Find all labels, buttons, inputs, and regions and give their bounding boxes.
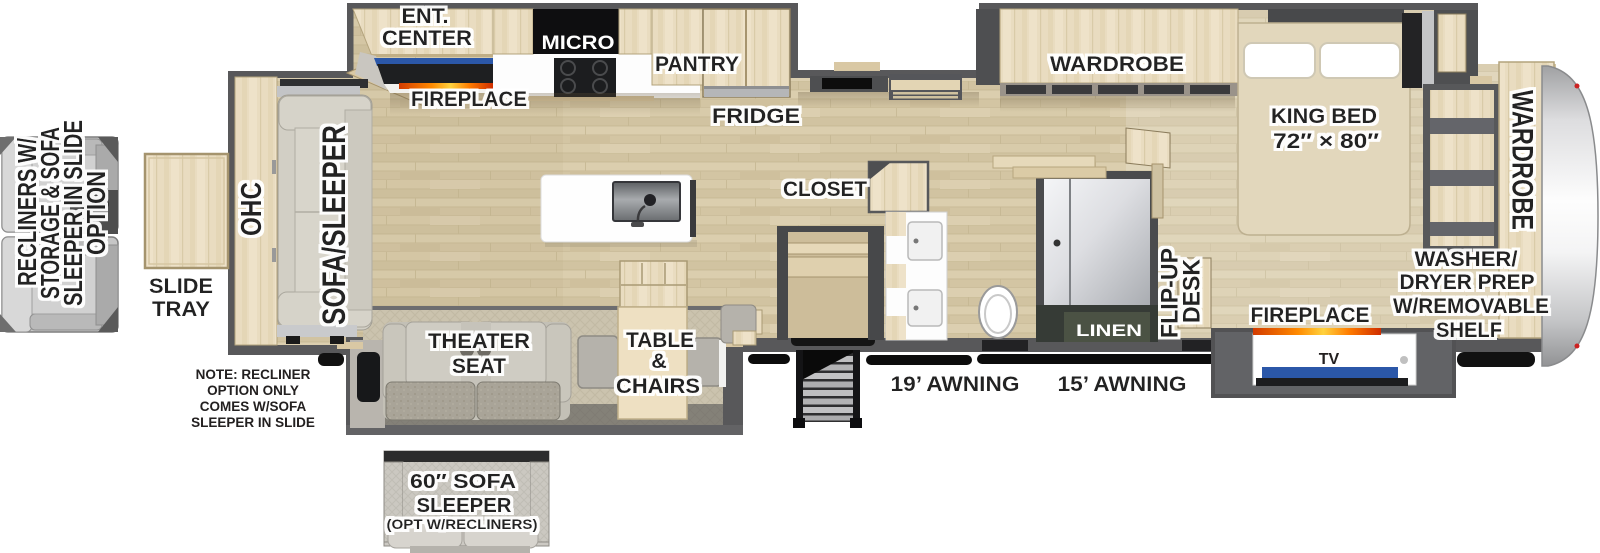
svg-text:72″ × 80″: 72″ × 80″: [1273, 129, 1379, 153]
svg-text:SLIDE: SLIDE: [149, 274, 213, 298]
svg-text:(OPT W/RECLINERS): (OPT W/RECLINERS): [387, 517, 538, 532]
svg-text:LINEN: LINEN: [1076, 322, 1142, 340]
svg-text:CLOSET: CLOSET: [783, 177, 867, 201]
svg-text:ENT.: ENT.: [402, 4, 449, 28]
svg-text:FRIDGE: FRIDGE: [712, 104, 800, 128]
svg-text:15’ AWNING: 15’ AWNING: [1058, 372, 1187, 396]
svg-text:COMES W/SOFA: COMES W/SOFA: [200, 399, 307, 414]
svg-text:NOTE: RECLINER: NOTE: RECLINER: [196, 367, 311, 382]
svg-text:THEATER: THEATER: [428, 329, 530, 353]
svg-text:OHC: OHC: [236, 182, 268, 236]
svg-text:WARDROBE: WARDROBE: [1050, 52, 1184, 76]
svg-text:TRAY: TRAY: [152, 297, 210, 321]
svg-text:SOFA/SLEEPER: SOFA/SLEEPER: [316, 125, 352, 325]
svg-text:W/REMOVABLE: W/REMOVABLE: [1393, 294, 1549, 318]
svg-text:19’ AWNING: 19’ AWNING: [891, 372, 1020, 396]
svg-text:60″ SOFA: 60″ SOFA: [410, 471, 516, 493]
svg-text:SLEEPER: SLEEPER: [417, 495, 513, 517]
svg-text:CHAIRS: CHAIRS: [616, 374, 700, 398]
svg-text:CENTER: CENTER: [382, 26, 472, 50]
svg-text:MICRO: MICRO: [542, 33, 615, 54]
svg-text:DESK: DESK: [1179, 258, 1206, 323]
svg-text:DRYER PREP: DRYER PREP: [1400, 270, 1535, 294]
svg-text:KING BED: KING BED: [1271, 104, 1377, 128]
svg-text:PANTRY: PANTRY: [655, 52, 739, 76]
svg-text:OPTION: OPTION: [81, 171, 111, 255]
svg-text:SEAT: SEAT: [452, 354, 506, 378]
svg-text:WASHER/: WASHER/: [1415, 247, 1518, 271]
svg-text:WARDROBE: WARDROBE: [1506, 90, 1539, 230]
svg-text:SHELF: SHELF: [1436, 318, 1502, 342]
svg-text:TV: TV: [1319, 351, 1340, 368]
svg-text:SLEEPER IN SLIDE: SLEEPER IN SLIDE: [191, 415, 315, 430]
svg-text:FIREPLACE: FIREPLACE: [1251, 303, 1370, 327]
svg-text:&: &: [651, 349, 667, 373]
svg-text:OPTION ONLY: OPTION ONLY: [207, 383, 299, 398]
svg-text:FIREPLACE: FIREPLACE: [411, 87, 527, 111]
